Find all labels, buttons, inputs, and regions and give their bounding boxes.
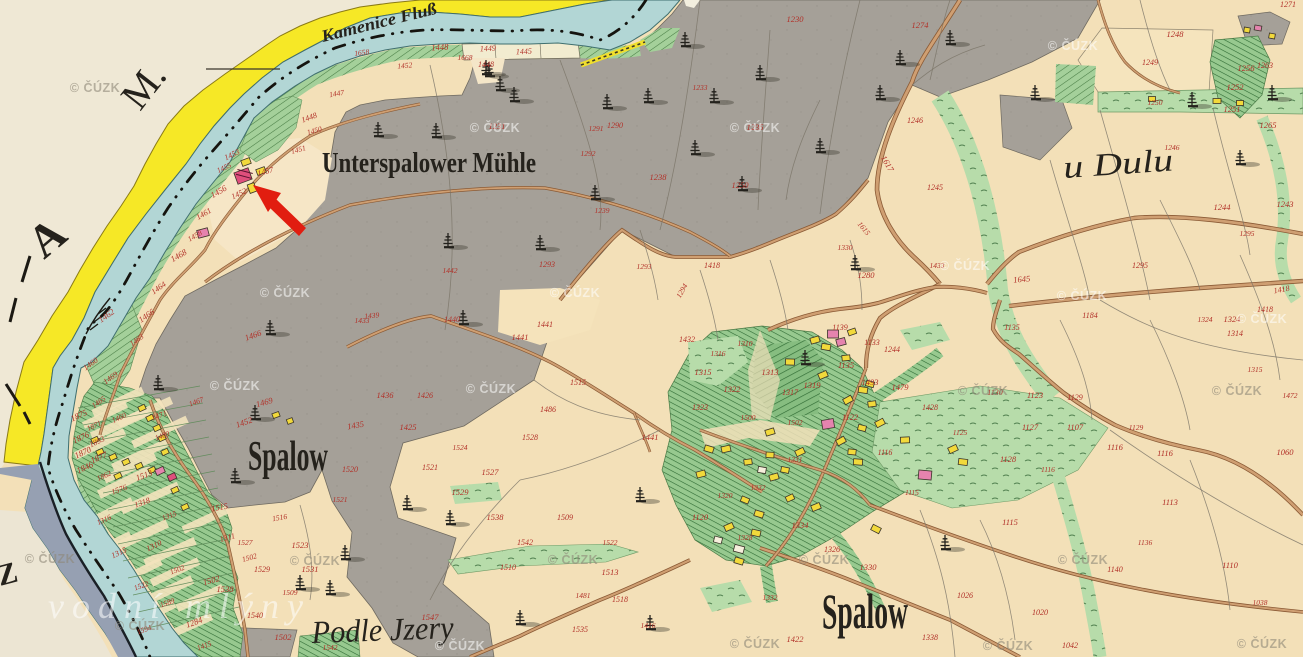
svg-text:1107: 1107	[1067, 422, 1084, 432]
svg-text:1120: 1120	[692, 512, 709, 522]
svg-text:© ČÚZK: © ČÚZK	[799, 552, 849, 567]
svg-text:1248: 1248	[1167, 29, 1185, 39]
svg-text:1140: 1140	[1107, 565, 1122, 574]
svg-text:1472: 1472	[1283, 391, 1298, 400]
svg-text:© ČÚZK: © ČÚZK	[1212, 383, 1262, 398]
svg-text:1520: 1520	[342, 465, 358, 474]
svg-text:1243: 1243	[1277, 199, 1294, 209]
svg-text:1042: 1042	[1062, 641, 1078, 650]
svg-text:1249: 1249	[1142, 58, 1158, 67]
svg-text:1245: 1245	[927, 183, 943, 192]
svg-text:1290: 1290	[607, 121, 623, 130]
svg-text:1510: 1510	[500, 563, 516, 572]
svg-text:1528: 1528	[522, 433, 538, 442]
svg-text:1317: 1317	[782, 388, 799, 397]
svg-text:1529: 1529	[254, 565, 270, 574]
svg-text:1115: 1115	[1002, 517, 1018, 527]
svg-text:1493: 1493	[862, 377, 879, 387]
svg-text:1293: 1293	[637, 262, 652, 271]
svg-text:1314: 1314	[1227, 329, 1243, 338]
svg-text:1527: 1527	[482, 467, 500, 477]
svg-text:1521: 1521	[422, 463, 438, 472]
svg-text:1128: 1128	[1000, 454, 1017, 464]
svg-text:1426: 1426	[417, 391, 433, 400]
svg-text:© ČÚZK: © ČÚZK	[260, 285, 310, 300]
svg-text:1324: 1324	[1198, 315, 1213, 324]
svg-text:© ČÚZK: © ČÚZK	[1237, 311, 1287, 326]
svg-text:1448: 1448	[431, 42, 449, 53]
svg-text:1310: 1310	[738, 339, 753, 348]
svg-text:1449: 1449	[480, 44, 496, 54]
svg-text:1452: 1452	[397, 60, 413, 70]
svg-text:vodní mlýny: vodní mlýny	[48, 586, 311, 626]
svg-text:1509: 1509	[557, 513, 573, 522]
svg-text:1256: 1256	[1238, 63, 1256, 73]
svg-text:1127: 1127	[1022, 422, 1039, 432]
svg-text:1133: 1133	[864, 338, 879, 347]
svg-text:1250: 1250	[1148, 98, 1163, 107]
svg-text:1244: 1244	[1214, 202, 1232, 212]
svg-text:1113: 1113	[1162, 497, 1178, 507]
svg-text:1668: 1668	[458, 53, 473, 62]
svg-text:1523: 1523	[292, 540, 309, 550]
svg-text:1244: 1244	[884, 345, 900, 354]
svg-text:© ČÚZK: © ČÚZK	[1057, 288, 1107, 303]
svg-text:1328: 1328	[738, 533, 753, 542]
svg-text:1116: 1116	[878, 448, 893, 457]
svg-text:© ČÚZK: © ČÚZK	[210, 378, 260, 393]
svg-text:1263: 1263	[1257, 61, 1273, 70]
svg-text:1315: 1315	[1248, 365, 1263, 374]
svg-text:1441: 1441	[642, 432, 659, 442]
svg-text:1425: 1425	[400, 422, 417, 432]
svg-text:© ČÚZK: © ČÚZK	[730, 636, 780, 651]
svg-text:1436: 1436	[377, 390, 395, 400]
svg-text:1271: 1271	[1280, 0, 1296, 9]
svg-text:1116: 1116	[1107, 442, 1123, 452]
svg-text:1445: 1445	[516, 47, 532, 57]
svg-text:1522: 1522	[603, 538, 618, 547]
svg-text:1122: 1122	[842, 412, 859, 422]
svg-text:1502: 1502	[788, 418, 803, 427]
svg-text:© ČÚZK: © ČÚZK	[548, 552, 598, 567]
svg-text:© ČÚZK: © ČÚZK	[470, 120, 520, 135]
svg-text:1440: 1440	[444, 315, 460, 324]
svg-text:© ČÚZK: © ČÚZK	[730, 120, 780, 135]
svg-text:1265: 1265	[1260, 120, 1277, 130]
svg-text:© ČÚZK: © ČÚZK	[1048, 38, 1098, 53]
svg-text:1338: 1338	[922, 633, 938, 642]
svg-text:Podle Jzery: Podle Jzery	[310, 609, 455, 650]
svg-text:1291: 1291	[589, 124, 604, 133]
svg-text:1428: 1428	[922, 403, 938, 412]
svg-text:1125: 1125	[953, 428, 968, 437]
svg-text:1529: 1529	[452, 487, 470, 497]
svg-text:1239: 1239	[595, 206, 610, 215]
svg-text:1538: 1538	[487, 512, 505, 522]
svg-text:1274: 1274	[912, 20, 930, 30]
svg-text:1060: 1060	[1277, 447, 1295, 457]
svg-text:1246: 1246	[907, 116, 923, 125]
svg-text:1442: 1442	[443, 266, 458, 275]
svg-text:1295: 1295	[1240, 229, 1255, 238]
svg-text:1448: 1448	[478, 60, 494, 69]
svg-text:1135: 1135	[838, 360, 854, 370]
svg-text:Spalow: Spalow	[822, 583, 908, 639]
svg-text:1129: 1129	[1129, 423, 1144, 432]
svg-text:1416: 1416	[641, 621, 656, 630]
svg-text:1515: 1515	[570, 378, 586, 387]
svg-text:1323: 1323	[692, 403, 708, 412]
svg-text:© ČÚZK: © ČÚZK	[1058, 552, 1108, 567]
svg-text:1295: 1295	[1132, 261, 1148, 270]
svg-text:1136: 1136	[1138, 538, 1153, 547]
svg-text:1251: 1251	[1224, 104, 1241, 114]
svg-text:1332: 1332	[751, 483, 766, 492]
svg-text:1524: 1524	[453, 443, 468, 452]
svg-text:1542: 1542	[517, 538, 533, 547]
svg-text:1250: 1250	[732, 180, 750, 190]
svg-text:u Dulu: u Dulu	[1062, 141, 1174, 185]
svg-text:1486: 1486	[540, 405, 556, 414]
svg-text:1230: 1230	[787, 14, 805, 24]
svg-text:1038: 1038	[1253, 598, 1268, 607]
svg-text:1479: 1479	[892, 382, 910, 392]
svg-text:1280: 1280	[858, 270, 876, 280]
svg-text:1518: 1518	[612, 595, 628, 604]
svg-text:1330: 1330	[860, 562, 878, 572]
svg-text:1238: 1238	[650, 172, 668, 182]
svg-text:Unterspalower Mühle: Unterspalower Mühle	[322, 147, 536, 179]
svg-text:© ČÚZK: © ČÚZK	[290, 553, 340, 568]
svg-text:1481: 1481	[576, 591, 591, 600]
svg-text:1332: 1332	[763, 593, 778, 602]
svg-text:1422: 1422	[787, 634, 805, 644]
svg-text:© ČÚZK: © ČÚZK	[958, 383, 1008, 398]
svg-text:1129: 1129	[1067, 393, 1082, 402]
svg-text:1502: 1502	[275, 632, 293, 642]
svg-text:1500: 1500	[741, 413, 756, 422]
svg-text:1331: 1331	[788, 455, 803, 464]
svg-text:© ČÚZK: © ČÚZK	[940, 258, 990, 273]
svg-text:1334: 1334	[792, 520, 810, 530]
svg-text:1418: 1418	[704, 261, 720, 270]
svg-text:1535: 1535	[572, 625, 588, 634]
svg-text:1645: 1645	[1013, 273, 1031, 284]
svg-text:1110: 1110	[1222, 560, 1238, 570]
svg-text:1319: 1319	[804, 380, 822, 390]
svg-text:1313: 1313	[762, 367, 779, 377]
svg-text:© ČÚZK: © ČÚZK	[25, 551, 75, 566]
svg-text:1320: 1320	[718, 491, 733, 500]
svg-text:© ČÚZK: © ČÚZK	[550, 285, 600, 300]
svg-text:1116: 1116	[1157, 448, 1173, 458]
svg-text:1330: 1330	[838, 243, 853, 252]
svg-text:1252: 1252	[1227, 82, 1245, 92]
svg-text:1026: 1026	[957, 591, 973, 600]
svg-text:1521: 1521	[333, 495, 348, 504]
svg-text:1116: 1116	[1041, 465, 1055, 474]
svg-text:1293: 1293	[539, 260, 555, 269]
svg-text:Spalow: Spalow	[248, 434, 328, 480]
svg-text:© ČÚZK: © ČÚZK	[70, 80, 120, 95]
svg-text:© ČÚZK: © ČÚZK	[1237, 636, 1287, 651]
svg-text:1513: 1513	[602, 567, 619, 577]
svg-text:1316: 1316	[711, 349, 726, 358]
svg-text:1123: 1123	[1027, 390, 1043, 400]
svg-text:1115: 1115	[905, 488, 919, 497]
svg-text:1292: 1292	[581, 149, 596, 158]
svg-text:© ČÚZK: © ČÚZK	[466, 381, 516, 396]
svg-text:© ČÚZK: © ČÚZK	[983, 638, 1033, 653]
svg-text:1233: 1233	[693, 83, 708, 92]
svg-text:1441: 1441	[512, 332, 529, 342]
svg-text:1322: 1322	[724, 384, 742, 394]
svg-text:1020: 1020	[1032, 608, 1048, 617]
svg-text:1315: 1315	[695, 367, 712, 377]
svg-text:1527: 1527	[238, 538, 253, 547]
svg-text:1432: 1432	[679, 335, 695, 344]
svg-text:1439: 1439	[364, 310, 380, 320]
svg-text:1441: 1441	[537, 320, 553, 329]
svg-text:1135: 1135	[1004, 323, 1019, 332]
svg-text:1139: 1139	[832, 323, 847, 332]
svg-text:1184: 1184	[1082, 311, 1097, 320]
svg-text:© ČÚZK: © ČÚZK	[435, 638, 485, 653]
